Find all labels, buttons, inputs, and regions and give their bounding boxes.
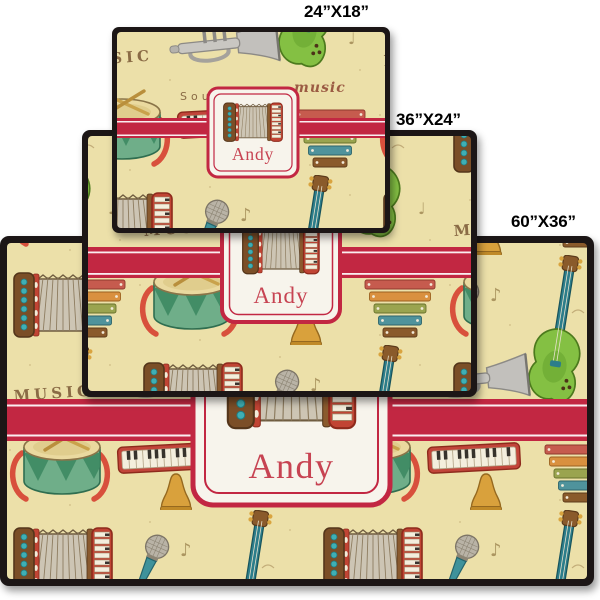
size-label-24x18: 24”X18” [304, 2, 369, 22]
size-label-36x24: 36”X24” [396, 110, 461, 130]
mat-24x18-name-plate: Andy [208, 88, 298, 177]
name-text: Andy [249, 446, 335, 486]
product-mockup-stage: 24”X18” 36”X24” 60”X36” [0, 0, 600, 600]
size-label-60x36: 60”X36” [511, 212, 576, 232]
mat-24x18: Andy [112, 27, 390, 233]
mockup-image: ♪ MUSIC music Sound ♩ [0, 0, 600, 600]
name-text: Andy [232, 144, 274, 164]
name-text: Andy [253, 283, 308, 308]
accordion-icon [224, 103, 283, 141]
